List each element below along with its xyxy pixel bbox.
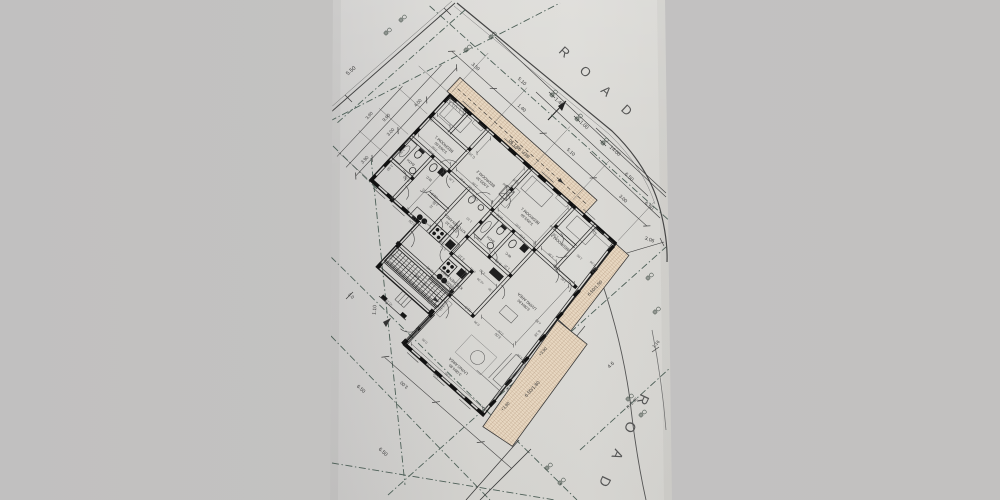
svg-text:1.10: 1.10 (372, 305, 379, 315)
